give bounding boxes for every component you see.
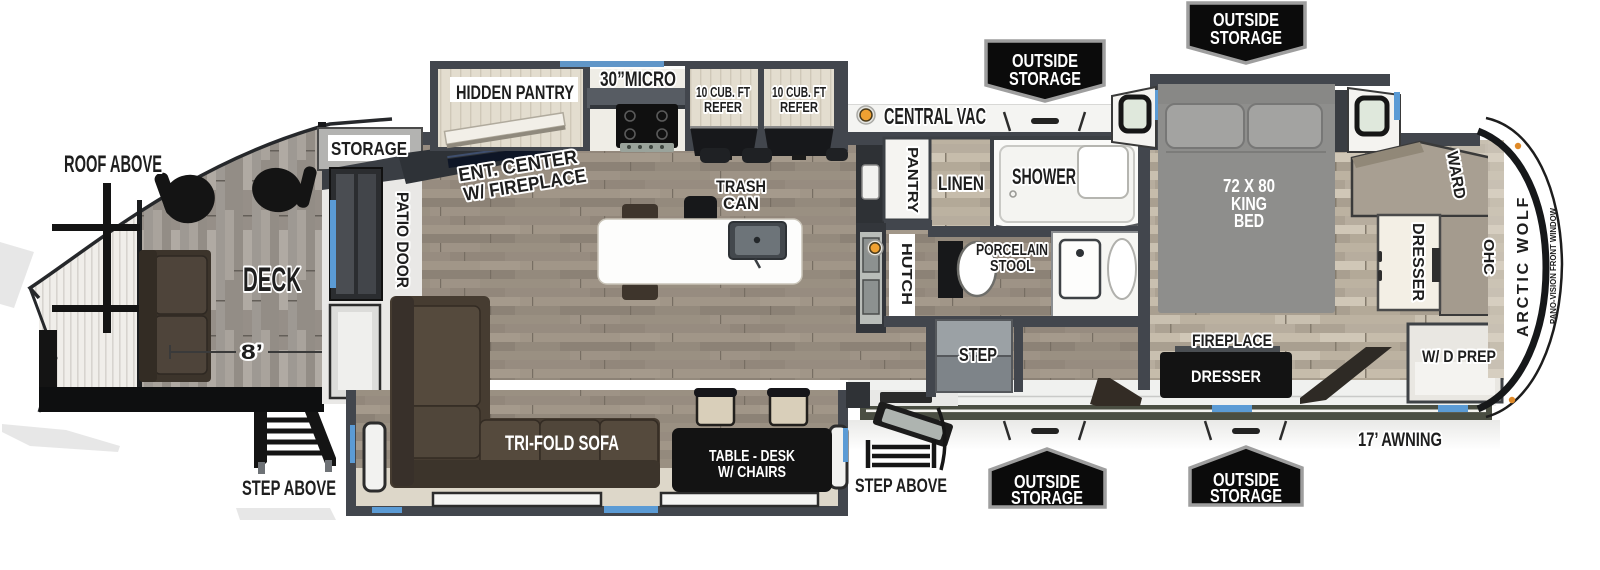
svg-text:W/ D PREP: W/ D PREP xyxy=(1422,347,1496,366)
svg-text:PANTRY: PANTRY xyxy=(904,147,921,213)
svg-text:DECK: DECK xyxy=(243,261,301,299)
svg-text:OHC: OHC xyxy=(1480,239,1497,275)
svg-text:STORAGE: STORAGE xyxy=(331,139,407,159)
svg-text:DRESSER: DRESSER xyxy=(1409,223,1426,301)
svg-text:30”MICRO: 30”MICRO xyxy=(600,68,676,91)
svg-text:17’ AWNING: 17’ AWNING xyxy=(1358,430,1442,451)
svg-text:LINEN: LINEN xyxy=(938,174,984,195)
svg-text:8’: 8’ xyxy=(241,341,263,364)
svg-text:STEP ABOVE: STEP ABOVE xyxy=(242,477,336,500)
svg-text:STEP: STEP xyxy=(959,345,997,365)
svg-text:CENTRAL VAC: CENTRAL VAC xyxy=(884,103,986,129)
svg-text:BED: BED xyxy=(1234,210,1264,231)
svg-text:TRI-FOLD SOFA: TRI-FOLD SOFA xyxy=(505,432,619,455)
svg-text:10 CUB. FT: 10 CUB. FT xyxy=(696,85,750,101)
svg-text:STORAGE: STORAGE xyxy=(1210,486,1282,506)
svg-text:STORAGE: STORAGE xyxy=(1009,69,1081,89)
svg-text:REFER: REFER xyxy=(780,100,818,116)
svg-text:REFER: REFER xyxy=(704,100,742,116)
svg-text:10 CUB. FT: 10 CUB. FT xyxy=(772,85,826,101)
svg-text:ARCTIC WOLF: ARCTIC WOLF xyxy=(1515,195,1532,337)
svg-text:CAN: CAN xyxy=(723,194,759,213)
svg-text:HUTCH: HUTCH xyxy=(898,243,915,305)
svg-text:DRESSER: DRESSER xyxy=(1191,367,1261,386)
svg-text:STOOL: STOOL xyxy=(990,258,1034,275)
svg-text:PATIO DOOR: PATIO DOOR xyxy=(393,192,412,288)
svg-text:W/ CHAIRS: W/ CHAIRS xyxy=(718,464,786,481)
svg-text:SHOWER: SHOWER xyxy=(1012,164,1076,189)
svg-text:FIREPLACE: FIREPLACE xyxy=(1192,331,1272,350)
svg-text:OUTSIDE: OUTSIDE xyxy=(1012,51,1078,71)
svg-text:STORAGE: STORAGE xyxy=(1011,488,1083,508)
svg-text:STEP ABOVE: STEP ABOVE xyxy=(855,476,947,497)
svg-text:HIDDEN PANTRY: HIDDEN PANTRY xyxy=(456,83,574,104)
svg-text:PANO-VISION FRONT WINDOW: PANO-VISION FRONT WINDOW xyxy=(1548,207,1558,324)
svg-text:ROOF ABOVE: ROOF ABOVE xyxy=(64,151,162,178)
svg-text:PORCELAIN: PORCELAIN xyxy=(976,242,1048,259)
svg-text:TABLE - DESK: TABLE - DESK xyxy=(709,448,795,465)
svg-text:STORAGE: STORAGE xyxy=(1210,28,1282,48)
svg-text:OUTSIDE: OUTSIDE xyxy=(1213,10,1279,30)
